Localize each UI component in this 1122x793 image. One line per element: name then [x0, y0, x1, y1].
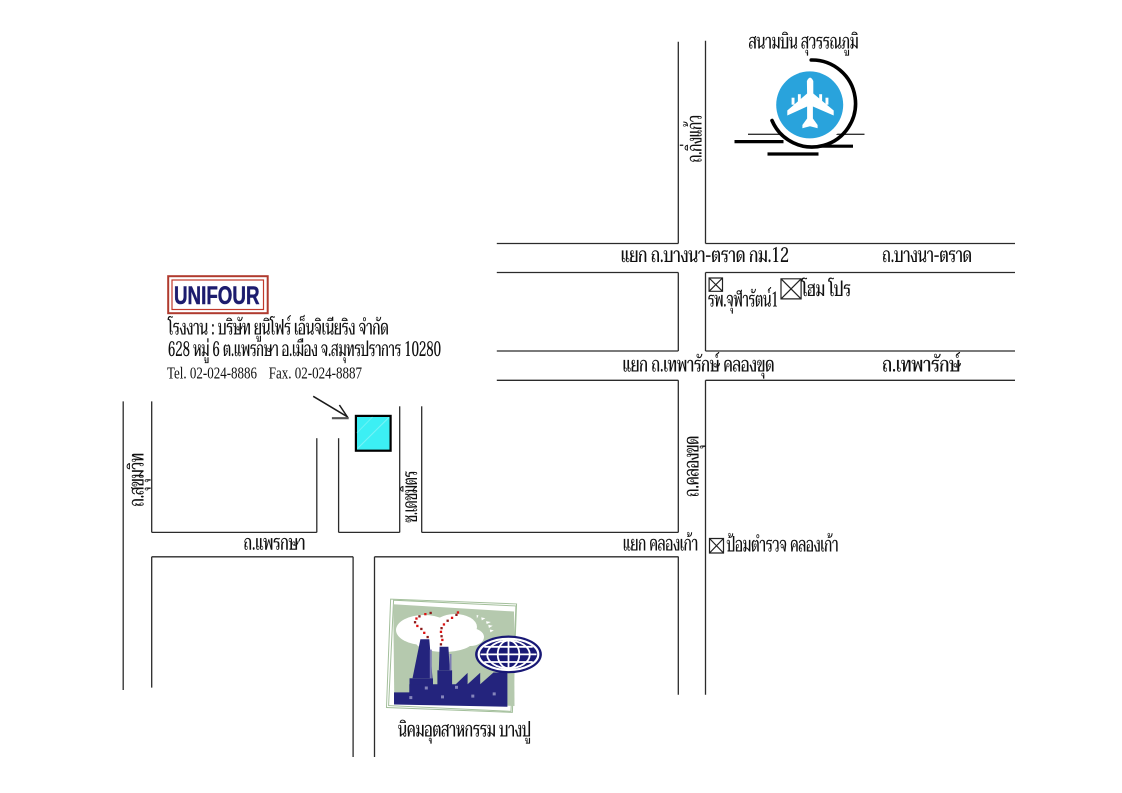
svg-text:UNIFOUR: UNIFOUR: [174, 282, 260, 310]
svg-text:Tel. 02-024-8886Fax. 02-024-88: Tel. 02-024-8886Fax. 02-024-8887: [167, 364, 362, 383]
